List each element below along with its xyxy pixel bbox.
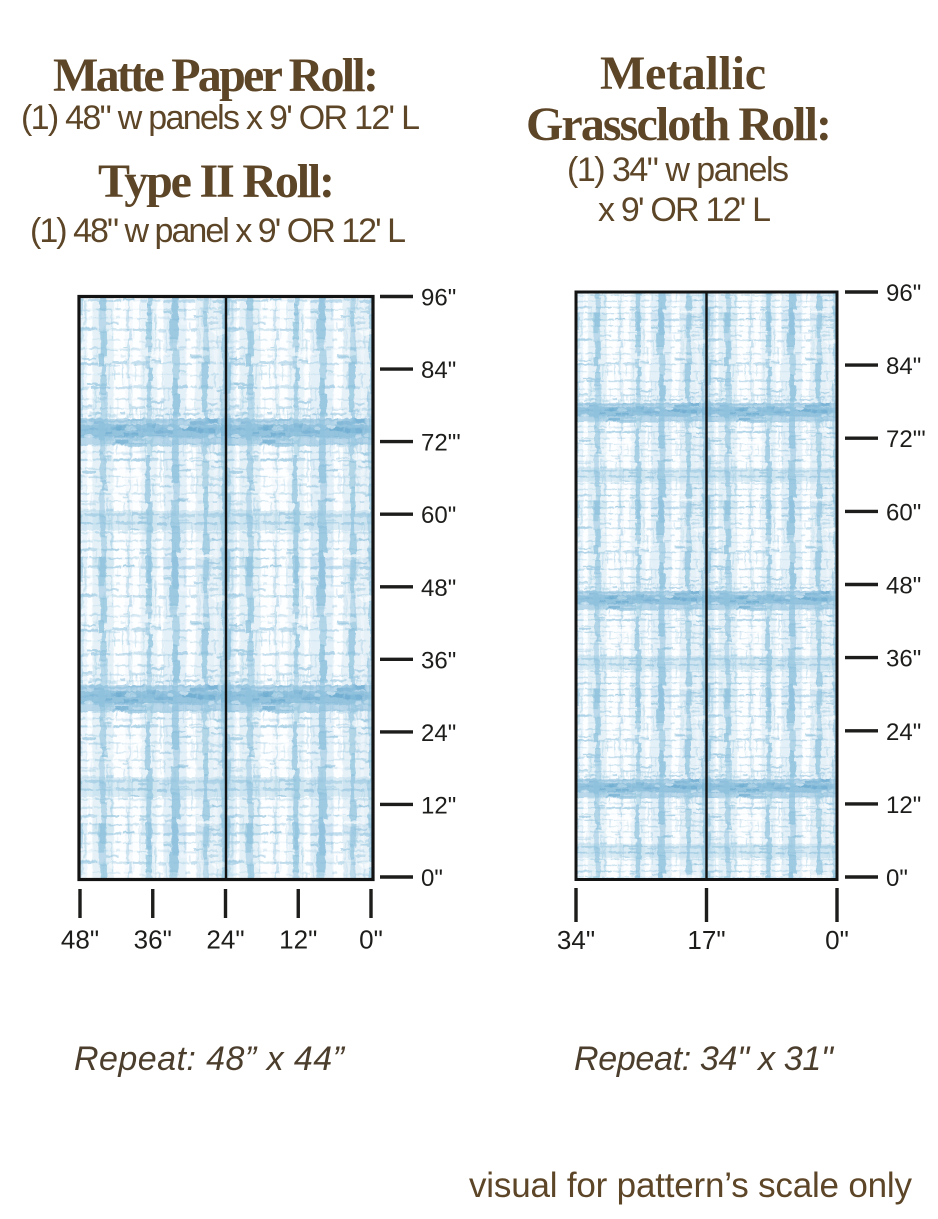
svg-text:12": 12" [421,792,456,819]
svg-text:34": 34" [557,925,595,955]
svg-text:24": 24" [421,720,456,747]
svg-text:visual for pattern’s scale onl: visual for pattern’s scale only [469,1166,913,1205]
svg-text:72"': 72"' [421,430,461,457]
svg-text:12": 12" [886,792,921,819]
svg-text:Repeat: 48” x 44”: Repeat: 48” x 44” [74,1040,346,1078]
svg-text:48": 48" [61,925,99,955]
svg-text:72"': 72"' [886,426,926,453]
svg-text:0": 0" [421,865,443,892]
svg-text:96": 96" [886,280,921,307]
svg-text:12": 12" [279,925,317,955]
svg-text:84": 84" [421,357,456,384]
svg-text:(1) 48" w panel x 9' OR 12' L: (1) 48" w panel x 9' OR 12' L [30,212,406,250]
svg-text:60": 60" [421,502,456,529]
svg-text:17": 17" [687,925,725,955]
svg-text:0": 0" [359,925,383,955]
svg-text:Grasscloth Roll:: Grasscloth Roll: [526,98,832,151]
svg-text:60": 60" [886,499,921,526]
svg-text:Type II Roll:: Type II Roll: [98,155,335,208]
svg-text:36": 36" [134,925,172,955]
svg-text:48": 48" [421,575,456,602]
svg-text:0": 0" [825,925,849,955]
svg-text:(1) 48" w panels x 9' OR 12' L: (1) 48" w panels x 9' OR 12' L [21,99,420,137]
svg-text:48": 48" [886,573,921,600]
svg-text:84": 84" [886,353,921,380]
svg-text:36": 36" [886,646,921,673]
svg-text:24": 24" [206,925,244,955]
svg-text:Repeat: 34" x 31": Repeat: 34" x 31" [574,1040,835,1078]
svg-text:24": 24" [886,719,921,746]
svg-text:Metallic: Metallic [600,47,766,100]
svg-text:x 9' OR 12' L: x 9' OR 12' L [598,191,771,229]
svg-text:96": 96" [421,285,456,312]
svg-text:36": 36" [421,647,456,674]
svg-text:(1) 34" w panels: (1) 34" w panels [567,151,789,189]
svg-text:Matte Paper Roll:: Matte Paper Roll: [53,49,379,102]
svg-text:0": 0" [886,865,908,892]
